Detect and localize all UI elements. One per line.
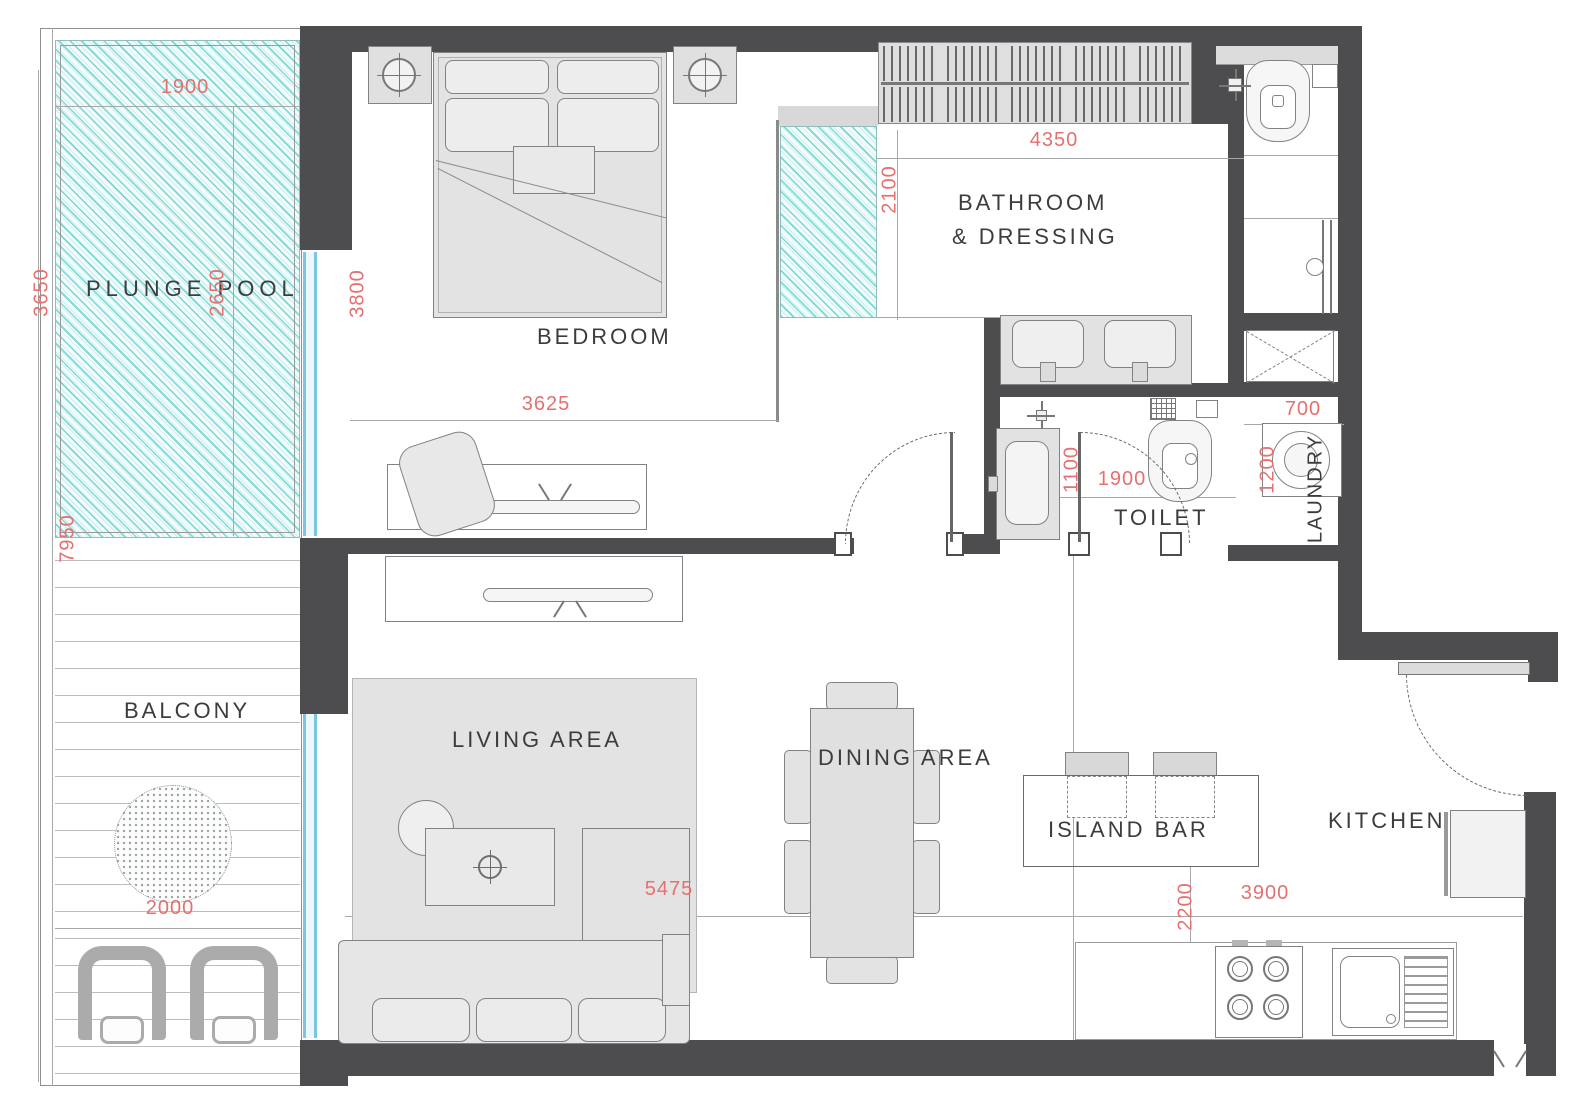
dim-balcony-width: 2000 [138, 897, 202, 920]
toilet-flush-plate [1196, 400, 1218, 418]
wc-toilet [1246, 60, 1310, 142]
vent-mark-icon [1498, 1048, 1522, 1066]
dim-toilet-width: 1900 [1090, 468, 1154, 491]
line-wc-2 [1244, 218, 1338, 219]
sofa-cushion-1 [372, 998, 470, 1042]
label-bathroom-1: BATHROOM [958, 190, 1107, 216]
lamp-left [382, 58, 416, 92]
label-bathroom-2: & DRESSING [952, 224, 1118, 250]
burner-4 [1263, 994, 1289, 1020]
dim-balcony-total: 7950 [57, 507, 80, 571]
pillow-right-bottom [557, 98, 659, 152]
wall-entry-post [1528, 632, 1558, 682]
stove [1215, 946, 1303, 1038]
label-plunge-pool: PLUNGE POOL [86, 276, 299, 302]
wardrobe [878, 42, 1192, 124]
sink-drainboard [1404, 956, 1448, 1028]
wall-bottom [300, 1040, 1494, 1076]
duct-shaft [1246, 330, 1334, 382]
bedroom-door-leaf [950, 432, 953, 542]
wall-bedroom-living [348, 538, 854, 554]
dim-toilet-depth: 1100 [1061, 438, 1084, 502]
dim-living-width: 5475 [637, 878, 701, 901]
dining-chair-right-2 [912, 840, 940, 914]
dining-chair-bottom [826, 956, 898, 984]
wall-below-shaft [1228, 382, 1344, 397]
label-bedroom: BEDROOM [537, 324, 672, 350]
pillow-right-top [557, 60, 659, 94]
coffee-table-decor-icon [478, 855, 502, 879]
sink-drain [1386, 1014, 1396, 1024]
wall-entry-head [1338, 632, 1558, 660]
label-kitchen: KITCHEN [1328, 808, 1446, 834]
bedroom-tv-mount-icon [543, 481, 567, 499]
dim-pool-width: 1900 [153, 76, 217, 99]
living-tv-mount-icon [558, 602, 582, 620]
dining-chair-top [826, 682, 898, 710]
planter-tree [114, 785, 232, 903]
vanity-faucet-right [1132, 362, 1148, 382]
burner-3 [1227, 994, 1253, 1020]
label-living-area: LIVING AREA [452, 727, 622, 753]
wall-bedroom-right [776, 120, 779, 422]
wall-left-mid [300, 538, 348, 714]
wardrobe-hangers-top [883, 46, 1187, 81]
window-bedroom [303, 252, 317, 536]
dim-line-bathroom [877, 158, 1244, 159]
vanity-faucet-left [1040, 362, 1056, 382]
dim-pool-side-left: 3650 [31, 261, 54, 325]
wc-toilet-drain [1272, 95, 1284, 107]
wc-tap-icon [1222, 72, 1248, 98]
dim-line-pool-inner [233, 106, 234, 536]
stove-knob-1 [1232, 940, 1248, 946]
towel-rail-knob [1306, 258, 1324, 276]
bar-stool-1-back [1065, 752, 1129, 776]
label-laundry: LAUNDRY [1305, 424, 1328, 554]
dim-bedroom-depth: 3800 [347, 262, 370, 326]
bedroom-tv [470, 500, 640, 514]
floor-plan: PLUNGE POOL BEDROOM BATHROOM & DRESSING … [0, 0, 1583, 1100]
bedroom-door-swing [845, 432, 955, 544]
line-wc-1 [1244, 155, 1338, 156]
wall-under-vanity [984, 383, 1244, 397]
sofa-side-panel [662, 934, 690, 1006]
dim-line-left [38, 70, 39, 1082]
burner-2 [1263, 956, 1289, 982]
lamp-right [688, 58, 722, 92]
dim-line-pool-width [55, 106, 300, 107]
toilet-washbasin-cabinet [996, 428, 1060, 540]
wall-top-left-corner [300, 26, 352, 250]
entry-door-swing [1406, 674, 1528, 796]
wardrobe-rail [881, 82, 1189, 85]
bed-throw [513, 146, 595, 194]
wall-right-lower [1524, 792, 1556, 1076]
bar-stool-2-back [1153, 752, 1217, 776]
burner-1 [1227, 956, 1253, 982]
toilet-washbasin-faucet [988, 476, 998, 492]
label-island-bar: ISLAND BAR [1048, 817, 1209, 843]
label-toilet: TOILET [1114, 505, 1209, 531]
label-balcony: BALCONY [124, 698, 250, 724]
balcony-chair-1 [78, 946, 166, 1040]
dim-bathroom-depth: 2100 [879, 158, 902, 222]
dim-kitchen-width: 3900 [1233, 882, 1297, 905]
toilet-tap-icon [1030, 404, 1052, 426]
sofa-cushion-3 [578, 998, 666, 1042]
pillow-left-top [445, 60, 549, 94]
sofa-cushion-2 [476, 998, 572, 1042]
wall-laundry-bottom [1228, 545, 1358, 561]
living-tv [483, 588, 653, 602]
dim-kitchen-depth: 2200 [1175, 875, 1198, 939]
wc-toilet-bowl [1260, 85, 1296, 129]
wc-flush-plate [1312, 64, 1338, 88]
dim-laundry-width: 700 [1279, 398, 1327, 421]
vanity-basin-right [1104, 320, 1176, 368]
balcony-chair-2 [190, 946, 278, 1040]
dim-bedroom-width: 3625 [514, 393, 578, 416]
stove-knob-2 [1266, 940, 1282, 946]
wall-above-shaft [1228, 313, 1344, 331]
dim-laundry-depth: 1200 [1257, 438, 1280, 502]
shower [780, 126, 877, 318]
label-dining-area: DINING AREA [818, 745, 993, 771]
fridge [1450, 810, 1526, 898]
floor-drain-icon [1150, 398, 1176, 420]
dim-pool-side-inner: 2650 [207, 261, 230, 325]
balcony-railing-inner-line [52, 28, 53, 1086]
window-living-balcony-door [303, 714, 317, 1038]
toilet-washbasin [1005, 441, 1049, 525]
vanity-basin-left [1012, 320, 1084, 368]
dining-chair-left-2 [784, 840, 812, 914]
dim-line-balcony [55, 928, 302, 929]
pillow-left-bottom [445, 98, 549, 152]
dim-bathroom-width: 4350 [1022, 129, 1086, 152]
dining-chair-left-1 [784, 750, 812, 824]
wardrobe-hangers-bottom [883, 87, 1187, 122]
wall-shower-top [778, 106, 878, 126]
dim-line-bedroom [350, 420, 778, 421]
entry-door-leaf [1398, 662, 1530, 675]
